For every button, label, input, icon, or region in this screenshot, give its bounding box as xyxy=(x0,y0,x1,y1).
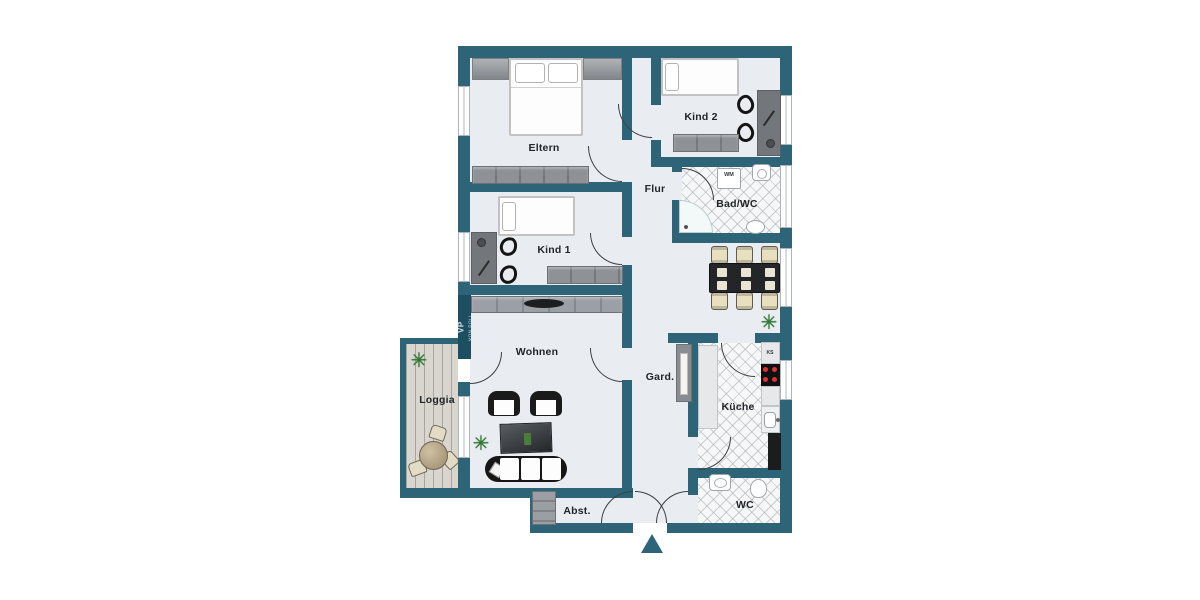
kitchen-counter xyxy=(698,345,718,429)
wall-segment xyxy=(458,458,470,490)
place-setting xyxy=(765,281,775,290)
sink-bowl xyxy=(714,478,727,488)
tv xyxy=(524,299,564,308)
hall-wardrobe xyxy=(676,344,692,402)
wall-segment xyxy=(688,478,698,495)
place-setting xyxy=(741,281,751,290)
room-label-wc: WC xyxy=(736,499,754,511)
dining-chair xyxy=(736,246,753,264)
dining-chair xyxy=(711,292,728,310)
stool xyxy=(766,139,775,148)
room-label-loggia: Loggia xyxy=(419,394,455,406)
wc-toilet xyxy=(750,479,767,498)
window xyxy=(458,86,470,136)
brand-watermark: VP VON POLL xyxy=(458,295,471,359)
wall-segment xyxy=(651,157,792,167)
armchair xyxy=(488,391,520,416)
burner xyxy=(763,367,768,372)
wall-segment xyxy=(672,233,792,243)
place-setting xyxy=(765,268,775,277)
floor-plan-canvas: ✳ ✳ ✳ xyxy=(0,0,1200,600)
room-label-flur: Flur xyxy=(645,183,666,195)
wall-segment xyxy=(780,400,792,533)
room-label-kueche: Küche xyxy=(721,401,754,413)
room-label-kind1: Kind 1 xyxy=(537,244,570,256)
sideboard xyxy=(471,296,623,313)
pen-icon xyxy=(478,260,490,276)
wall-segment xyxy=(780,58,792,95)
room-label-wohnen: Wohnen xyxy=(516,346,558,358)
pillow xyxy=(502,202,516,231)
sink-basin xyxy=(764,412,776,428)
plant-icon: ✳ xyxy=(409,350,429,370)
pillow xyxy=(515,63,545,83)
closet xyxy=(583,58,622,80)
double-bed xyxy=(509,58,583,136)
wall-segment xyxy=(622,182,632,237)
window xyxy=(780,360,792,400)
dining-chair xyxy=(761,246,778,264)
appliance-label-ks: KS xyxy=(767,350,774,356)
desk xyxy=(471,232,497,284)
wall-segment xyxy=(458,285,622,295)
window xyxy=(458,396,470,458)
appliance-label-wm: WM xyxy=(724,172,734,178)
pen-icon xyxy=(763,110,775,126)
room-label-abst: Abst. xyxy=(563,505,590,517)
room-label-kind2: Kind 2 xyxy=(684,111,717,123)
toilet xyxy=(752,164,771,181)
dining-chair xyxy=(711,246,728,264)
pillow xyxy=(548,63,578,83)
closet xyxy=(472,58,509,80)
loggia-wall xyxy=(400,338,458,344)
place-setting xyxy=(717,281,727,290)
armchair xyxy=(530,391,562,416)
kitchen-counter xyxy=(761,386,780,406)
faucet xyxy=(776,418,780,422)
loggia-wall xyxy=(400,338,406,494)
sofa xyxy=(485,456,567,482)
kitchen-sink-unit xyxy=(761,406,780,433)
room-label-eltern: Eltern xyxy=(529,142,560,154)
plant-icon: ✳ xyxy=(471,433,491,453)
stove xyxy=(761,364,780,386)
room-label-bad: Bad/WC xyxy=(716,198,757,210)
wall-segment xyxy=(458,46,792,58)
sofa-cushion xyxy=(521,458,540,480)
burner xyxy=(763,377,768,382)
room-label-gard: Gard. xyxy=(646,371,674,383)
window xyxy=(458,232,470,282)
toilet-bowl xyxy=(757,169,767,179)
window xyxy=(780,165,792,228)
wc-sink xyxy=(709,474,731,491)
sofa-cushion xyxy=(542,458,561,480)
dining-chair xyxy=(736,292,753,310)
window xyxy=(780,248,792,307)
armchair-seat xyxy=(536,400,556,415)
place-setting xyxy=(717,268,727,277)
wall-segment xyxy=(622,265,632,348)
burner xyxy=(772,367,777,372)
wardrobe xyxy=(673,134,739,152)
blanket-line xyxy=(511,87,581,88)
plant-icon: ✳ xyxy=(759,312,779,332)
storage-shelf xyxy=(532,491,556,525)
kitchen-counter-dark xyxy=(768,433,781,470)
wall-segment xyxy=(458,58,470,86)
brand-initials: VP xyxy=(457,321,466,333)
desk xyxy=(757,90,781,156)
pillow xyxy=(665,63,679,91)
brand-name: VON POLL xyxy=(468,313,473,340)
coffee-table xyxy=(499,422,552,454)
desk-lamp xyxy=(477,238,486,247)
table-deco xyxy=(524,433,531,445)
wall-segment xyxy=(458,382,470,396)
wardrobe-door xyxy=(680,353,688,395)
sofa-cushion xyxy=(500,458,519,480)
dining-chair xyxy=(761,292,778,310)
window xyxy=(780,95,792,145)
burner xyxy=(772,377,777,382)
single-bed xyxy=(661,58,739,96)
loggia-wall xyxy=(400,488,462,498)
wardrobe xyxy=(472,166,589,184)
single-bed xyxy=(498,196,575,236)
armchair-seat xyxy=(494,400,514,415)
place-setting xyxy=(741,268,751,277)
bathroom-sink xyxy=(746,220,765,234)
wall-segment xyxy=(622,380,632,488)
wall-segment xyxy=(651,58,661,105)
entrance-arrow-icon xyxy=(641,534,663,553)
shower-drain xyxy=(684,225,688,229)
wall-segment xyxy=(672,167,682,172)
wall-segment xyxy=(668,333,718,343)
wall-segment xyxy=(667,523,792,533)
dining-table xyxy=(709,263,780,293)
patio-table xyxy=(419,441,448,470)
wardrobe xyxy=(547,266,623,284)
